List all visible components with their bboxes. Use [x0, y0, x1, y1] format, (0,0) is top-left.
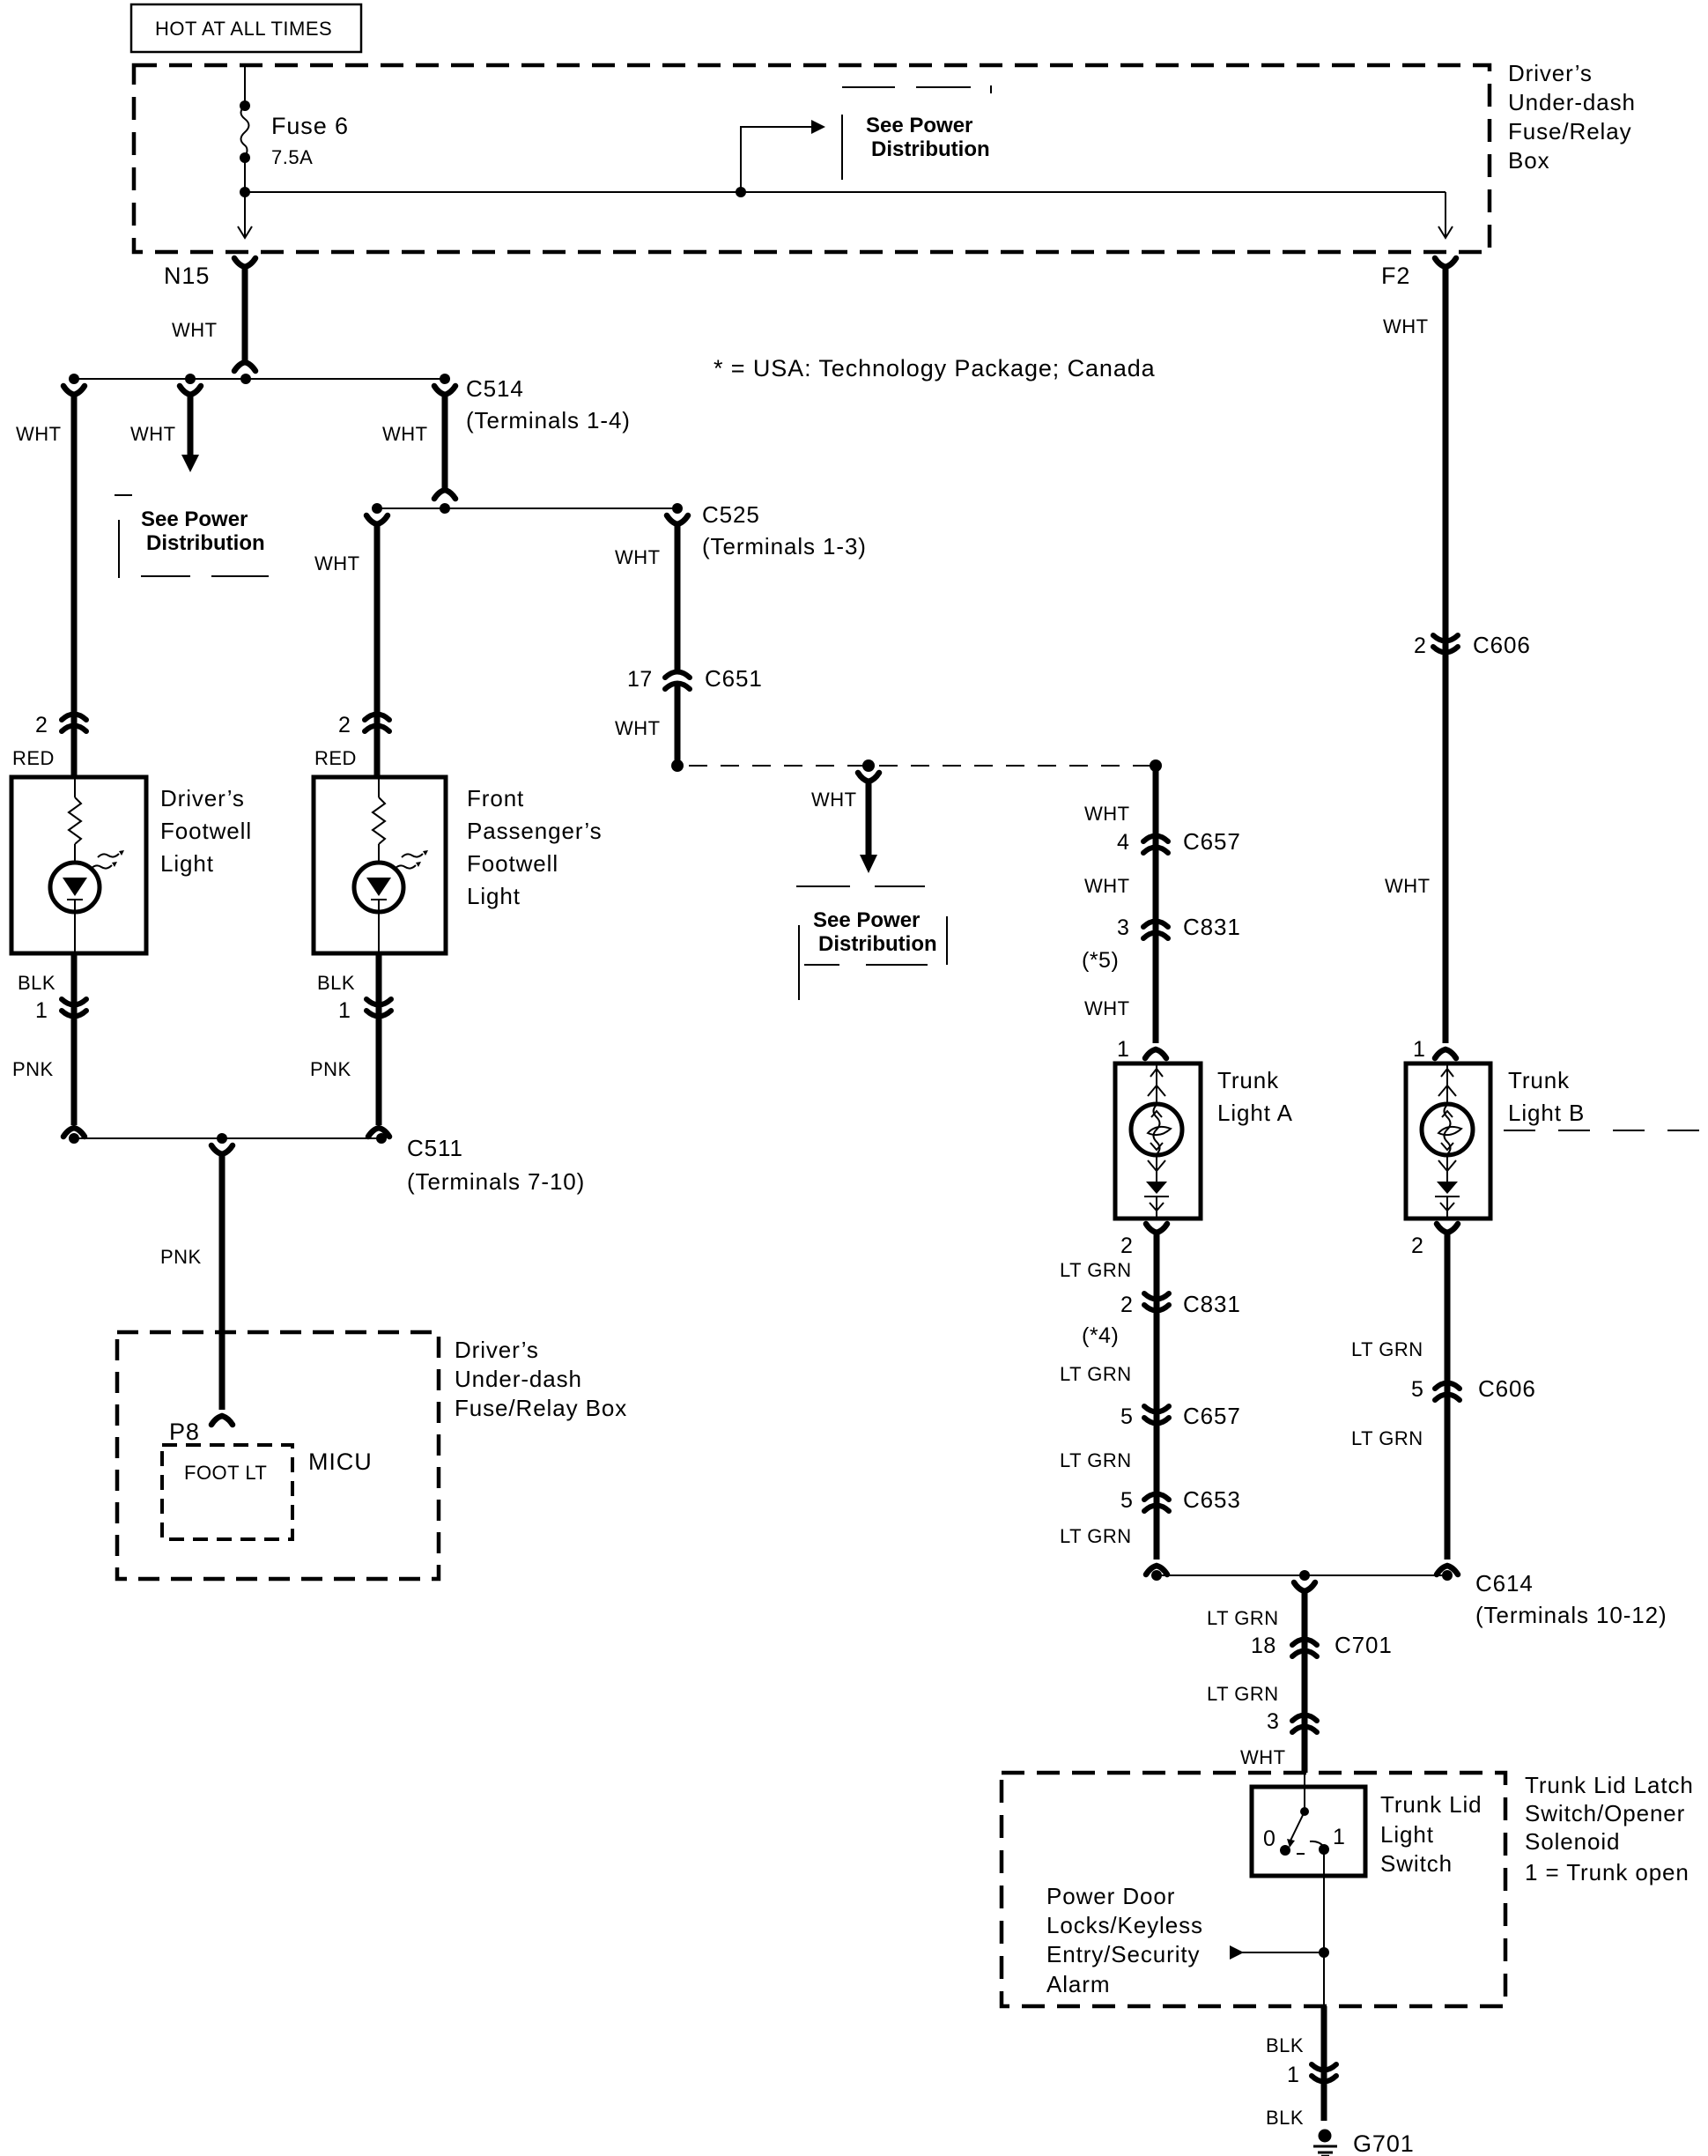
svg-text:C831: C831	[1183, 1291, 1241, 1317]
svg-text:Driver’s: Driver’s	[1508, 60, 1593, 86]
svg-text:C514: C514	[466, 375, 524, 402]
svg-text:WHT: WHT	[1383, 315, 1429, 337]
svg-text:C614: C614	[1475, 1570, 1534, 1597]
svg-text:Front: Front	[467, 785, 524, 811]
svg-text:2: 2	[35, 713, 48, 737]
svg-text:Driver’s: Driver’s	[160, 785, 245, 811]
svg-text:(*5): (*5)	[1082, 948, 1119, 973]
svg-text:See Power: See Power	[866, 114, 972, 137]
svg-text:G701: G701	[1353, 2130, 1415, 2156]
svg-text:See Power: See Power	[813, 908, 920, 932]
svg-text:PNK: PNK	[310, 1058, 351, 1080]
svg-text:Footwell: Footwell	[467, 850, 558, 877]
svg-text:LT GRN: LT GRN	[1207, 1683, 1279, 1705]
svg-text:F2: F2	[1381, 263, 1410, 289]
svg-text:LT GRN: LT GRN	[1351, 1427, 1423, 1449]
svg-text:5: 5	[1411, 1377, 1423, 1402]
svg-text:Trunk: Trunk	[1217, 1067, 1279, 1093]
svg-text:3: 3	[1117, 915, 1129, 940]
svg-text:Light: Light	[160, 850, 214, 877]
svg-text:WHT: WHT	[1240, 1746, 1286, 1768]
svg-text:(Terminals 7-10): (Terminals 7-10)	[407, 1168, 585, 1195]
svg-text:C701: C701	[1335, 1632, 1393, 1658]
svg-text:BLK: BLK	[1266, 2034, 1304, 2056]
svg-text:Alarm: Alarm	[1046, 1971, 1110, 1997]
svg-text:Switch: Switch	[1380, 1850, 1453, 1877]
svg-text:LT GRN: LT GRN	[1060, 1449, 1132, 1471]
svg-text:Light A: Light A	[1217, 1100, 1293, 1126]
svg-text:C651: C651	[705, 665, 763, 692]
svg-text:LT GRN: LT GRN	[1060, 1259, 1132, 1281]
svg-text:WHT: WHT	[1084, 803, 1130, 825]
svg-text:C511: C511	[407, 1135, 463, 1161]
svg-text:LT GRN: LT GRN	[1060, 1525, 1132, 1547]
svg-text:1: 1	[1287, 2063, 1299, 2087]
svg-text:WHT: WHT	[811, 789, 857, 811]
svg-text:WHT: WHT	[615, 717, 661, 739]
svg-text:2: 2	[338, 713, 351, 737]
svg-text:2: 2	[1120, 1234, 1133, 1258]
svg-text:Fuse 6: Fuse 6	[271, 113, 349, 139]
svg-text:PNK: PNK	[12, 1058, 54, 1080]
svg-text:Power Door: Power Door	[1046, 1883, 1175, 1909]
svg-text:BLK: BLK	[1266, 2107, 1304, 2129]
svg-text:Distribution: Distribution	[818, 932, 937, 956]
svg-text:1: 1	[1333, 1825, 1345, 1849]
svg-text:5: 5	[1120, 1404, 1133, 1429]
svg-text:C831: C831	[1183, 914, 1241, 940]
svg-text:LT GRN: LT GRN	[1207, 1607, 1279, 1629]
svg-text:Box: Box	[1508, 147, 1550, 174]
svg-text:Fuse/Relay Box: Fuse/Relay Box	[455, 1395, 627, 1421]
svg-text:1: 1	[1117, 1037, 1129, 1062]
svg-text:FOOT LT: FOOT LT	[184, 1462, 267, 1484]
svg-text:5: 5	[1120, 1488, 1133, 1513]
svg-text:1 = Trunk open: 1 = Trunk open	[1525, 1859, 1690, 1886]
svg-text:Switch/Opener: Switch/Opener	[1525, 1800, 1685, 1826]
svg-text:Passenger’s: Passenger’s	[467, 818, 602, 844]
svg-text:LT GRN: LT GRN	[1060, 1363, 1132, 1385]
svg-text:C657: C657	[1183, 828, 1241, 855]
svg-text:HOT AT ALL TIMES: HOT AT ALL TIMES	[155, 18, 332, 40]
svg-text:WHT: WHT	[382, 423, 428, 445]
svg-text:Trunk Lid: Trunk Lid	[1380, 1791, 1482, 1818]
svg-text:WHT: WHT	[1385, 875, 1431, 897]
svg-text:1: 1	[1413, 1037, 1425, 1062]
svg-text:C606: C606	[1478, 1375, 1536, 1402]
svg-text:WHT: WHT	[16, 423, 62, 445]
svg-text:Distribution: Distribution	[146, 531, 265, 555]
svg-text:WHT: WHT	[1084, 875, 1130, 897]
svg-text:4: 4	[1117, 830, 1129, 855]
svg-text:Entry/Security: Entry/Security	[1046, 1941, 1200, 1967]
svg-text:LT GRN: LT GRN	[1351, 1338, 1423, 1360]
svg-text:RED: RED	[314, 747, 357, 769]
svg-text:(Terminals 1-4): (Terminals 1-4)	[466, 407, 631, 433]
svg-text:BLK: BLK	[317, 972, 355, 994]
svg-text:P8: P8	[169, 1419, 200, 1445]
svg-text:Light: Light	[1380, 1821, 1434, 1848]
svg-text:2: 2	[1414, 633, 1426, 658]
svg-text:Light B: Light B	[1508, 1100, 1585, 1126]
svg-text:3: 3	[1267, 1709, 1279, 1734]
svg-text:See Power: See Power	[141, 508, 248, 531]
svg-text:PNK: PNK	[160, 1246, 202, 1268]
svg-text:C657: C657	[1183, 1403, 1241, 1429]
svg-text:WHT: WHT	[314, 552, 360, 574]
svg-text:* = USA: Technology Package; C: * = USA: Technology Package; Canada	[714, 355, 1156, 382]
svg-text:MICU: MICU	[308, 1448, 373, 1475]
svg-text:7.5A: 7.5A	[271, 146, 313, 168]
svg-text:Footwell: Footwell	[160, 818, 252, 844]
svg-text:RED: RED	[12, 747, 55, 769]
svg-text:Under-dash: Under-dash	[1508, 89, 1636, 115]
svg-text:Under-dash: Under-dash	[455, 1366, 582, 1392]
svg-text:BLK: BLK	[18, 972, 55, 994]
svg-text:18: 18	[1251, 1634, 1276, 1658]
svg-text:Light: Light	[467, 883, 521, 909]
svg-text:N15: N15	[164, 263, 210, 289]
svg-text:WHT: WHT	[172, 319, 218, 341]
svg-text:Solenoid: Solenoid	[1525, 1828, 1620, 1855]
svg-text:17: 17	[627, 667, 653, 692]
svg-text:Trunk: Trunk	[1508, 1067, 1570, 1093]
svg-text:C606: C606	[1473, 632, 1531, 658]
svg-text:1: 1	[35, 998, 48, 1023]
svg-text:WHT: WHT	[130, 423, 176, 445]
svg-text:1: 1	[338, 998, 351, 1023]
svg-text:2: 2	[1120, 1293, 1133, 1317]
svg-text:C653: C653	[1183, 1486, 1241, 1513]
svg-text:(*4): (*4)	[1082, 1323, 1119, 1348]
svg-text:WHT: WHT	[1084, 997, 1130, 1019]
svg-text:Distribution: Distribution	[871, 137, 990, 161]
svg-text:Locks/Keyless: Locks/Keyless	[1046, 1912, 1203, 1938]
svg-text:Trunk Lid Latch: Trunk Lid Latch	[1525, 1772, 1694, 1798]
svg-text:0: 0	[1263, 1826, 1275, 1851]
svg-text:WHT: WHT	[615, 546, 661, 568]
svg-text:Fuse/Relay: Fuse/Relay	[1508, 118, 1632, 144]
svg-text:Driver’s: Driver’s	[455, 1337, 539, 1363]
svg-text:(Terminals 10-12): (Terminals 10-12)	[1475, 1602, 1667, 1628]
svg-text:2: 2	[1411, 1234, 1423, 1258]
svg-text:(Terminals 1-3): (Terminals 1-3)	[702, 533, 867, 559]
svg-text:C525: C525	[702, 501, 760, 528]
